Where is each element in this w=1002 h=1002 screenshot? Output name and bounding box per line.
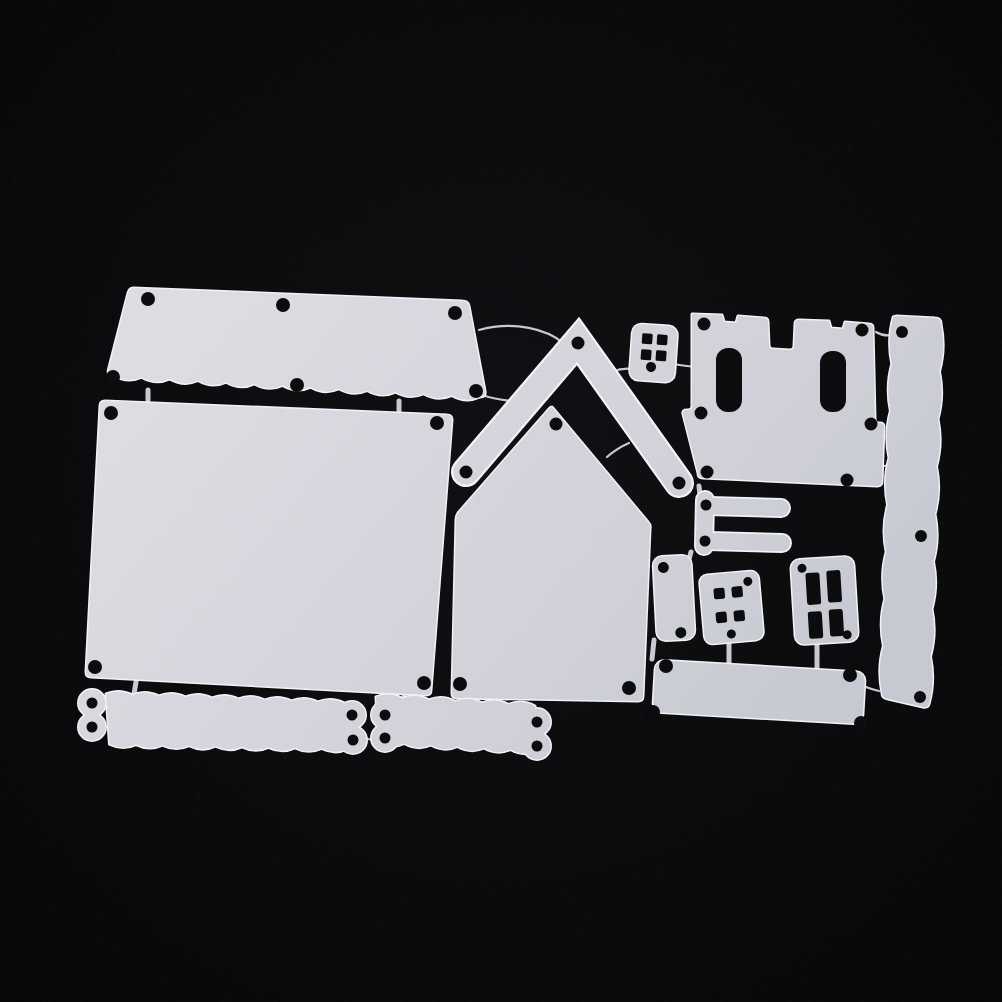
photo-grain-overlay	[0, 0, 1002, 1002]
product-photo-stage	[0, 0, 1002, 1002]
die-set-photo	[0, 0, 1002, 1002]
